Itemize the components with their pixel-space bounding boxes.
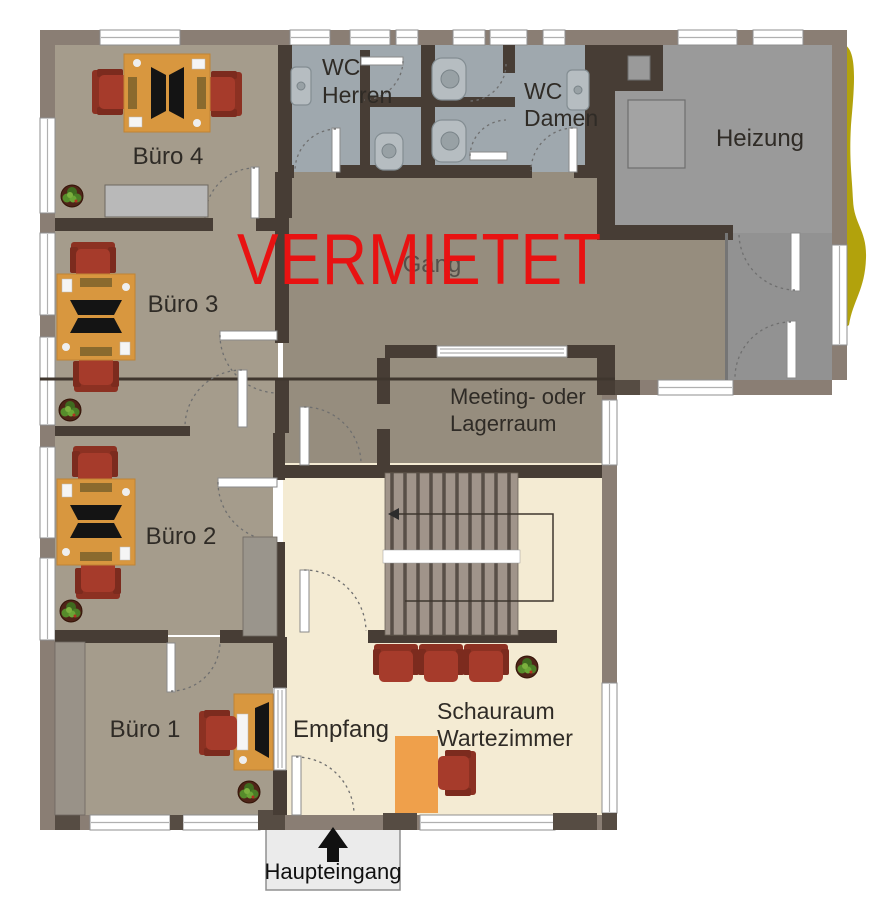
room-label-meeting-line2: Lagerraum xyxy=(450,411,556,436)
plant-icon xyxy=(238,781,260,803)
room-label-heizung: Heizung xyxy=(716,125,804,152)
room-label-buero4: Büro 4 xyxy=(133,143,204,170)
monitor-icon xyxy=(255,702,269,758)
room-label-empfang: Empfang xyxy=(293,716,389,743)
room-label-wc-damen-line2: Damen xyxy=(524,105,598,131)
vestibule-divider xyxy=(725,233,728,380)
waiting-chair xyxy=(463,644,509,682)
heating-unit xyxy=(628,100,685,168)
room-label-buero2: Büro 2 xyxy=(146,523,217,550)
plant-icon xyxy=(516,656,538,678)
entrance-label: Haupteingang xyxy=(264,859,401,884)
plant-icon xyxy=(59,399,81,421)
hedge-shape xyxy=(845,45,866,328)
room-label-meeting-line1: Meeting- oder xyxy=(450,384,586,409)
room-floor-gang-ext xyxy=(602,240,732,380)
reception-desk xyxy=(395,736,438,813)
room-label-buero3: Büro 3 xyxy=(148,291,219,318)
office-chair xyxy=(75,561,121,599)
desk xyxy=(57,479,135,565)
room-label-buero1: Büro 1 xyxy=(110,716,181,743)
chimney-inner xyxy=(628,56,650,80)
cabinet xyxy=(55,642,85,815)
room-label-wc-damen-line1: WC xyxy=(524,78,562,104)
plant-icon xyxy=(61,185,83,207)
room-label-schauraum-line1: Schauraum xyxy=(437,698,555,724)
waiting-chair xyxy=(418,644,464,682)
sideboard xyxy=(105,185,208,217)
room-floor-vestibule xyxy=(726,233,832,380)
room-label-schauraum-line2: Wartezimmer xyxy=(437,725,573,751)
room-label-wc-herren-line1: WC xyxy=(322,54,360,80)
plant-icon xyxy=(60,600,82,622)
office-chair xyxy=(72,446,118,484)
office-chair xyxy=(199,710,237,756)
stairs-landing xyxy=(383,550,520,563)
office-chair xyxy=(438,750,476,796)
desk xyxy=(57,274,135,360)
cabinet xyxy=(243,537,277,636)
status-overlay-label: VERMIETET xyxy=(237,220,602,300)
floorplan-svg: Büro 4 WC Herren WC Damen Heizung Gang B… xyxy=(0,0,887,919)
room-label-wc-herren-line2: Herren xyxy=(322,82,392,108)
desk xyxy=(124,54,210,132)
floorplan-page: Büro 4 WC Herren WC Damen Heizung Gang B… xyxy=(0,0,887,919)
waiting-chair xyxy=(373,644,419,682)
